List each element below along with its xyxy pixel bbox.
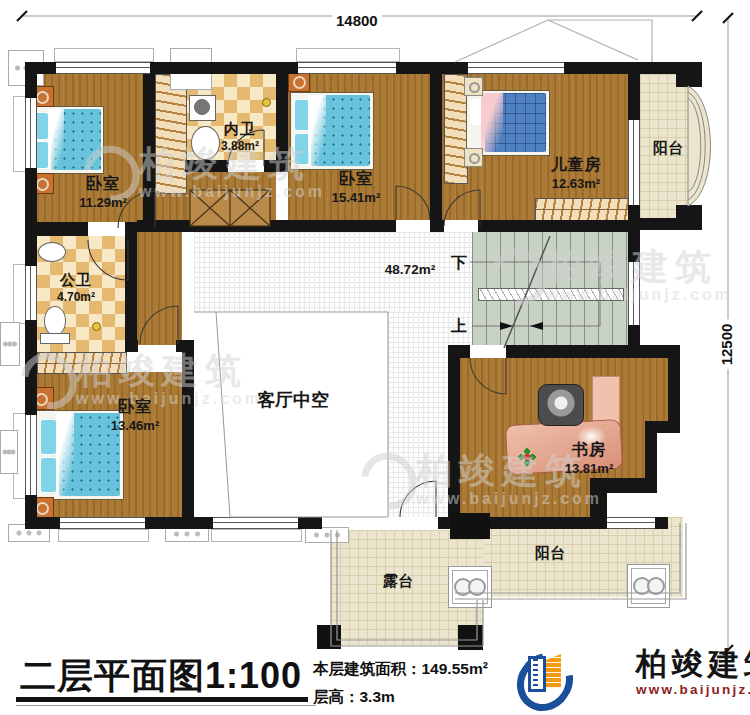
pillow bbox=[40, 457, 57, 493]
window bbox=[25, 98, 37, 168]
nightstand bbox=[464, 77, 483, 96]
window bbox=[25, 415, 37, 495]
corner-ornament bbox=[0, 322, 20, 366]
bedroom1-wardrobe bbox=[155, 74, 187, 194]
window bbox=[25, 266, 37, 320]
wall-study-step-h bbox=[645, 421, 680, 433]
washer-door bbox=[194, 99, 210, 115]
floor-height-label: 层高： bbox=[313, 688, 360, 705]
sheet-fold bbox=[48, 109, 64, 170]
floor-area-value: 149.55m² bbox=[422, 660, 488, 677]
wall-innerbath-bottom-b bbox=[264, 160, 288, 172]
wall-south-cap bbox=[655, 517, 668, 529]
window bbox=[56, 62, 150, 74]
toilet-tank bbox=[40, 333, 70, 344]
wall-bed3-right bbox=[182, 345, 194, 529]
wall-publicbath-right bbox=[125, 222, 137, 352]
label-inner-bath: 内卫 3.88m² bbox=[221, 120, 259, 153]
label-balcony-bottom: 阳台 bbox=[535, 544, 565, 563]
label-living-void: 客厅中空 bbox=[257, 388, 329, 412]
wall-balcony-right-top bbox=[640, 62, 676, 74]
dimension-width: 14800 bbox=[332, 12, 382, 29]
label-public-bath: 公卫 4.70m² bbox=[57, 271, 95, 304]
column bbox=[458, 625, 483, 650]
floor-drain bbox=[262, 98, 271, 107]
balcony-corner-bottom bbox=[676, 205, 702, 230]
balcony-corner-top bbox=[676, 62, 702, 87]
corner-ornament bbox=[305, 527, 349, 543]
bed-children bbox=[466, 90, 550, 156]
stair-handrail bbox=[478, 288, 624, 301]
window bbox=[298, 62, 396, 74]
wall-study-step-v bbox=[645, 433, 657, 481]
nightstand bbox=[464, 148, 483, 167]
title-underline-thin bbox=[16, 705, 316, 706]
wall-innerbath-right bbox=[276, 62, 288, 172]
vestibule-floor-b bbox=[388, 347, 448, 517]
dressing-floor bbox=[155, 192, 185, 222]
bay-window-glass bbox=[688, 92, 705, 200]
wall-study-bottom bbox=[590, 478, 657, 493]
floor-drain bbox=[92, 322, 101, 331]
logo-icon bbox=[518, 648, 574, 706]
floor-height-stat: 层高：3.3m bbox=[313, 687, 395, 708]
wall-bedrow-c bbox=[430, 220, 444, 232]
planter-box bbox=[627, 564, 670, 608]
hall-alcove-floor bbox=[137, 232, 182, 345]
dimension-height: 12500 bbox=[718, 320, 735, 370]
floor-plan: 14800 12500 卧室 11.29m² 内卫 3.88m² 卧室 15.4… bbox=[0, 0, 750, 715]
pink-fold bbox=[481, 93, 503, 152]
window bbox=[607, 517, 655, 529]
toilet-bowl bbox=[44, 306, 66, 336]
title-underline bbox=[16, 697, 308, 702]
logo-building-blue bbox=[528, 656, 546, 692]
label-bedroom1: 卧室 11.29m² bbox=[79, 174, 127, 210]
window-sill bbox=[211, 529, 302, 542]
bed-bedroom1 bbox=[28, 106, 104, 174]
pillow bbox=[40, 419, 57, 455]
window-sill bbox=[54, 48, 154, 62]
wall-study-left bbox=[448, 358, 460, 517]
logo-brand: 柏竣建筑 bbox=[636, 648, 750, 681]
bed-bedroom2 bbox=[290, 92, 374, 170]
living-void-outline bbox=[216, 312, 388, 517]
sink bbox=[191, 126, 220, 160]
label-stairs-up: 上 bbox=[451, 316, 467, 337]
wall-bedrow-d bbox=[478, 220, 628, 232]
wall-balcony-right-bottom bbox=[640, 218, 676, 230]
wall-innerbath-bottom-a bbox=[185, 160, 228, 172]
wall-bedrow-b bbox=[137, 220, 396, 232]
company-logo: 柏竣建筑 www.baijunjz.com bbox=[518, 648, 750, 706]
wall-bed2-right bbox=[430, 62, 442, 232]
label-bedroom3: 卧室 13.46m² bbox=[111, 397, 159, 433]
wall-bed1-right bbox=[143, 62, 155, 222]
label-terrace: 露台 bbox=[383, 572, 413, 591]
corner-ornament bbox=[0, 430, 18, 474]
wall-bedrow-a bbox=[25, 222, 88, 236]
label-stairs-down: 下 bbox=[451, 253, 467, 274]
window bbox=[468, 62, 564, 74]
label-balcony-right: 阳台 bbox=[653, 139, 683, 158]
bedroom3-wardrobe bbox=[37, 352, 127, 374]
sink bbox=[38, 242, 66, 262]
floor-area-stat: 本层建筑面积：149.55m² bbox=[313, 659, 488, 680]
window-sill bbox=[296, 48, 400, 62]
column bbox=[450, 513, 490, 539]
floor-height-value: 3.3m bbox=[360, 688, 395, 705]
balcony-door-window bbox=[628, 120, 640, 205]
window-sill bbox=[58, 529, 149, 542]
study-floor-c bbox=[460, 478, 590, 517]
window bbox=[628, 262, 640, 325]
label-children-room: 儿童房 12.63m² bbox=[551, 155, 602, 191]
label-study: 书房 13.81m² bbox=[565, 440, 613, 476]
bay-window-arc bbox=[688, 86, 711, 206]
title-text: 二层平面图 bbox=[20, 655, 205, 696]
window bbox=[60, 517, 145, 529]
wall-stairs-bottom-b bbox=[506, 345, 680, 358]
sheet-fold bbox=[308, 95, 326, 166]
nightstand bbox=[288, 71, 310, 92]
title-scale: 1:100 bbox=[205, 655, 302, 696]
wall-bed3-top-a bbox=[125, 340, 138, 352]
computer-chair bbox=[538, 384, 584, 426]
label-bedroom2: 卧室 15.41m² bbox=[332, 169, 380, 205]
sheet-fold bbox=[56, 413, 74, 496]
roof-lines bbox=[455, 20, 652, 62]
planter-box bbox=[448, 566, 492, 608]
logo-url: www.baijunjz.com bbox=[636, 682, 750, 697]
inner-bath-lobby-floor bbox=[185, 172, 276, 222]
desk-plant bbox=[518, 448, 536, 466]
floor-area-label: 本层建筑面积： bbox=[313, 660, 422, 677]
label-hall-area: 48.72m² bbox=[385, 262, 435, 277]
window bbox=[213, 517, 298, 529]
column bbox=[317, 625, 341, 649]
drawing-title: 二层平面图1:100 bbox=[20, 652, 302, 701]
wall-stairs-bottom-a bbox=[448, 345, 470, 358]
